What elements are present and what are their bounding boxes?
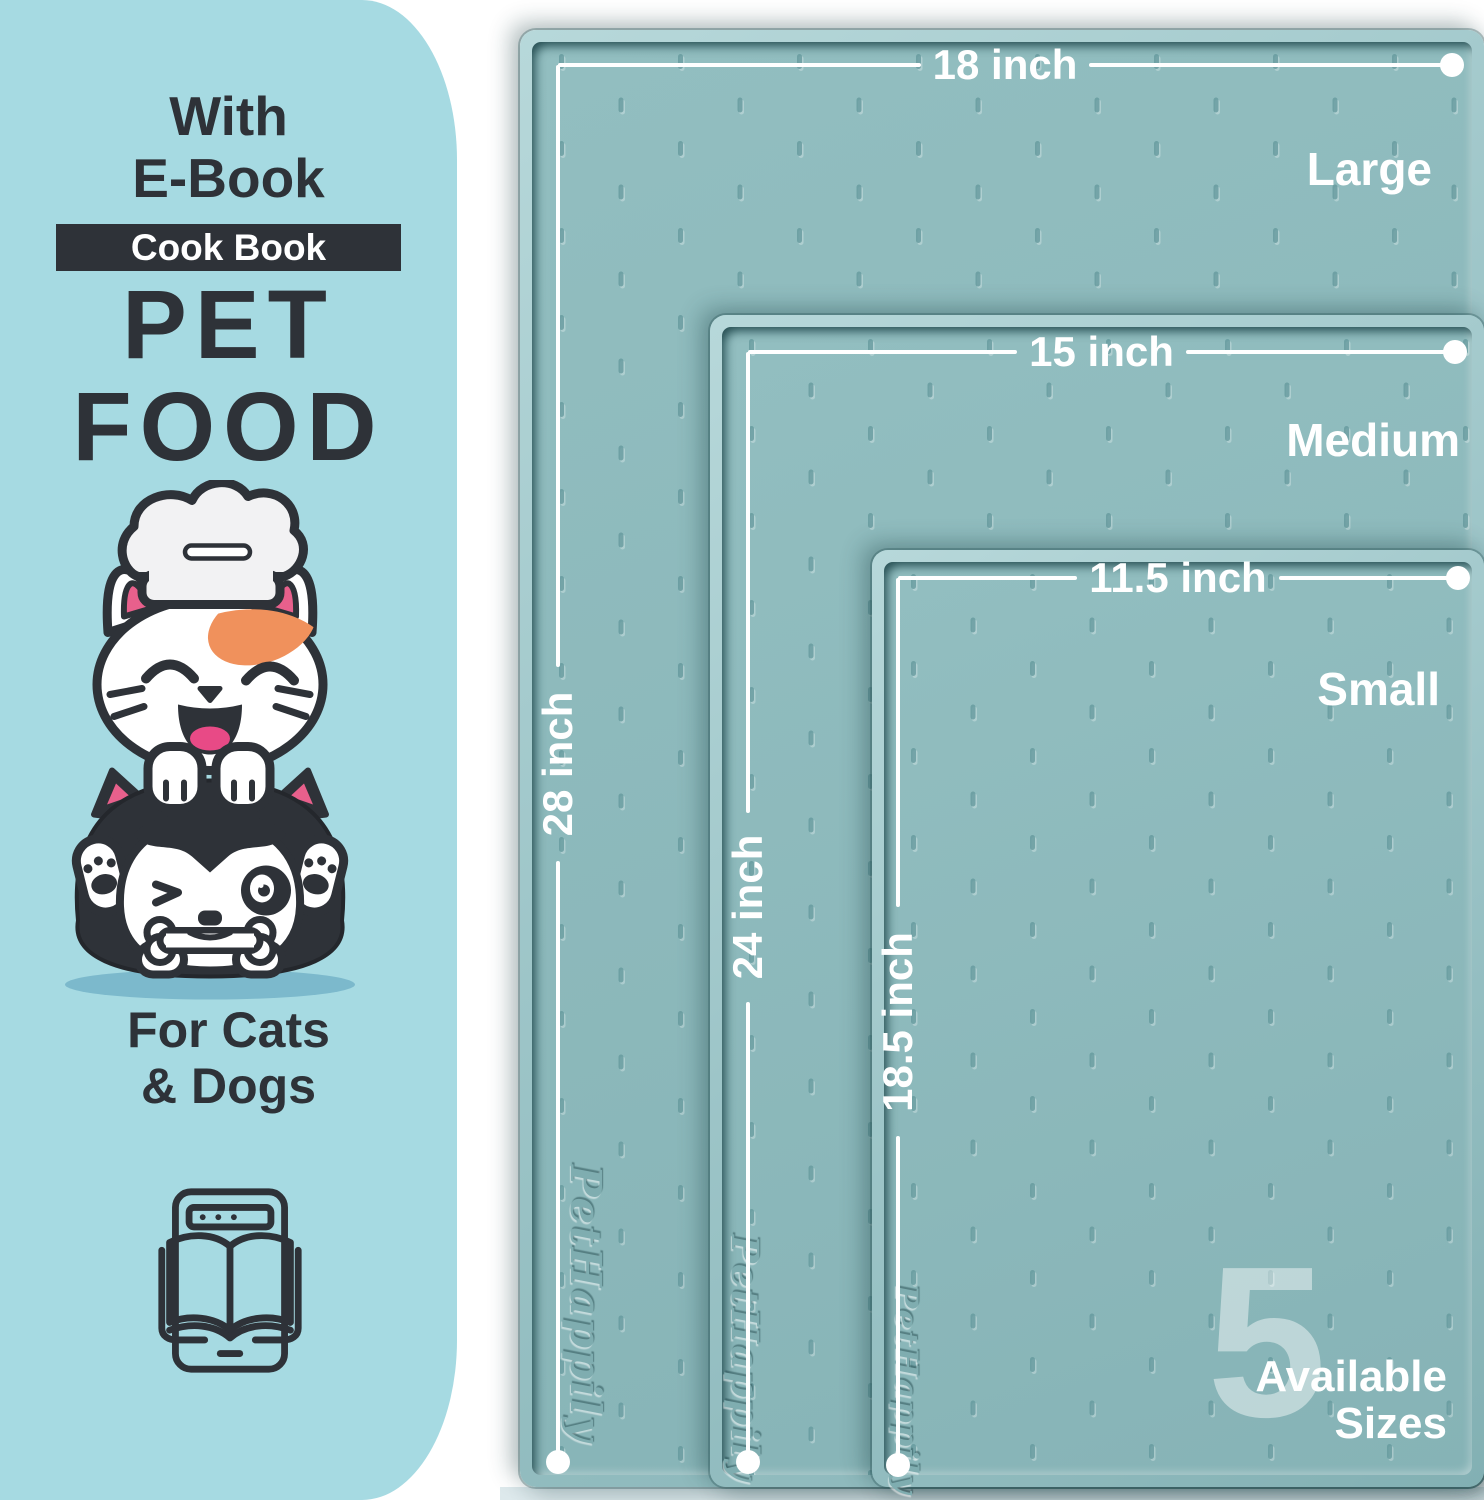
- page-title-line2: FOOD: [0, 376, 457, 478]
- audience-text-line1: For Cats: [0, 1002, 457, 1058]
- ebook-icon: [141, 1186, 319, 1376]
- product-infographic: With E-Book Cook Book PET FOOD: [0, 0, 1484, 1500]
- dimension-line: [896, 1136, 900, 1465]
- ebook-headline-line1: With: [0, 86, 457, 148]
- mat-small-length-label: 18.5 inch: [874, 932, 922, 1112]
- mat-small-width-dimension: 11.5 inch: [898, 555, 1458, 601]
- mat-small-length-label-box: 18.5 inch: [875, 919, 921, 1124]
- dimension-line: [556, 861, 560, 1463]
- audience-text-line2: & Dogs: [0, 1058, 457, 1114]
- mat-large-length-label: 28 inch: [534, 691, 582, 836]
- dimension-endpoint-dot: [1443, 340, 1467, 364]
- cat-dog-chef-illustration: [50, 480, 410, 1005]
- dimension-endpoint-dot: [1440, 53, 1464, 77]
- mat-small: PetHappily 11.5 inch 18.5 inch Small 5 A…: [872, 550, 1484, 1487]
- sizes-text: Available Sizes: [1255, 1353, 1447, 1447]
- dimension-line: [746, 352, 750, 813]
- mat-small-length-dimension: 18.5 inch: [875, 578, 921, 1465]
- dimension-line: [558, 63, 921, 67]
- dimension-endpoint-dot: [736, 1450, 760, 1474]
- mat-large-width-label: 18 inch: [933, 41, 1078, 89]
- mat-large-length-label-box: 28 inch: [535, 679, 581, 849]
- ebook-headline: With E-Book: [0, 86, 457, 209]
- dimension-line: [1186, 350, 1455, 354]
- mat-medium-length-label: 24 inch: [724, 835, 772, 980]
- left-panel: With E-Book Cook Book PET FOOD: [0, 0, 457, 1500]
- audience-text: For Cats & Dogs: [0, 1002, 457, 1114]
- dimension-line: [1279, 576, 1458, 580]
- dimension-line: [896, 578, 900, 907]
- dimension-endpoint-dot: [1446, 566, 1470, 590]
- cookbook-badge: Cook Book: [56, 224, 401, 271]
- mat-medium-length-label-box: 24 inch: [725, 825, 771, 990]
- page-title: PET FOOD: [0, 274, 457, 478]
- mat-large-length-dimension: 28 inch: [535, 65, 581, 1462]
- dimension-line: [556, 65, 560, 667]
- available-sizes-badge: 5 Available Sizes: [1207, 1282, 1447, 1447]
- mat-medium-size-label: Medium: [1286, 413, 1460, 467]
- ebook-headline-line2: E-Book: [0, 148, 457, 210]
- cookbook-badge-label: Cook Book: [131, 227, 326, 269]
- floor-shadow-strip: [500, 1487, 1484, 1500]
- sizes-text-line1: Available: [1255, 1353, 1447, 1400]
- dimension-endpoint-dot: [546, 1450, 570, 1474]
- mat-small-size-label: Small: [1317, 662, 1440, 716]
- mat-large-width-dimension: 18 inch: [558, 42, 1452, 88]
- mat-medium-width-dimension: 15 inch: [748, 329, 1455, 375]
- mat-medium-width-label: 15 inch: [1029, 328, 1174, 376]
- dimension-line: [1089, 63, 1452, 67]
- mat-medium-length-dimension: 24 inch: [725, 352, 771, 1462]
- dimension-line: [898, 576, 1077, 580]
- dimension-line: [746, 1002, 750, 1463]
- dimension-line: [748, 350, 1017, 354]
- dimension-endpoint-dot: [886, 1453, 910, 1477]
- mat-small-width-label: 11.5 inch: [1089, 554, 1266, 602]
- page-title-line1: PET: [0, 274, 457, 376]
- mat-large-size-label: Large: [1307, 142, 1432, 196]
- sizes-text-line2: Sizes: [1255, 1400, 1447, 1447]
